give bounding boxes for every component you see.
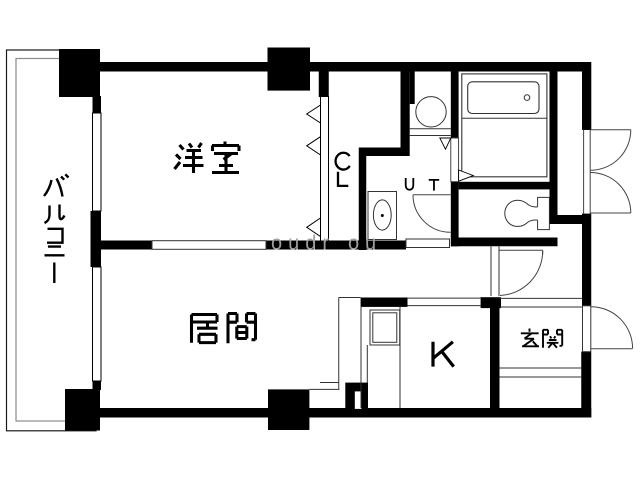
svg-text:oudr: oudr	[271, 233, 335, 255]
svg-text:ou: ou	[348, 233, 382, 255]
